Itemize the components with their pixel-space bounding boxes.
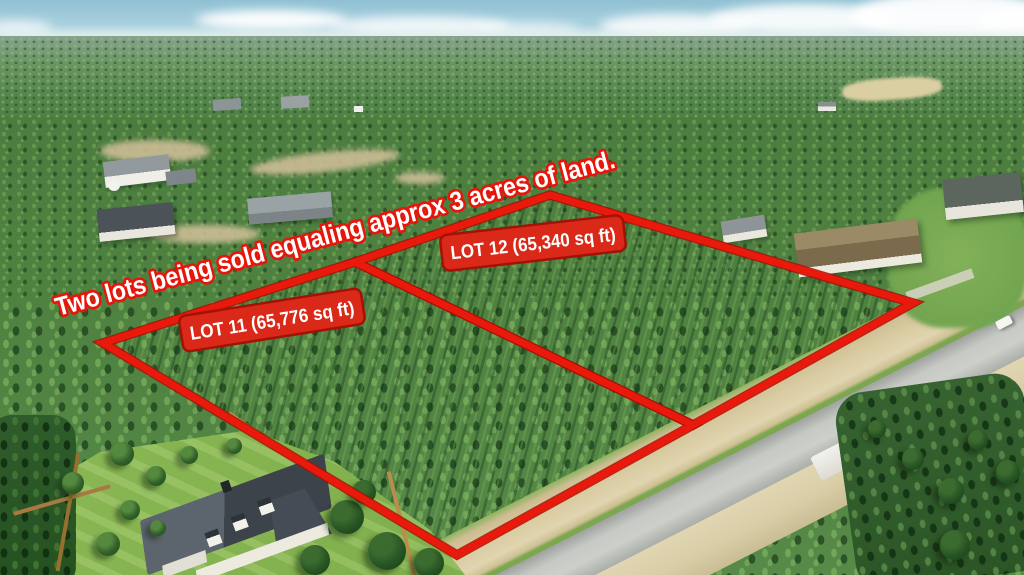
lot-12-boundary-shadow [355,195,913,425]
listing-photo: LOT 11 (65,776 sq ft) LOT 12 (65,340 sq … [0,0,1024,575]
lot-11-label: LOT 11 (65,776 sq ft) [178,288,365,352]
lot-11-boundary-shadow [103,262,693,555]
lot-11-boundary [103,262,693,555]
annotation-overlay: LOT 11 (65,776 sq ft) LOT 12 (65,340 sq … [0,0,1024,575]
